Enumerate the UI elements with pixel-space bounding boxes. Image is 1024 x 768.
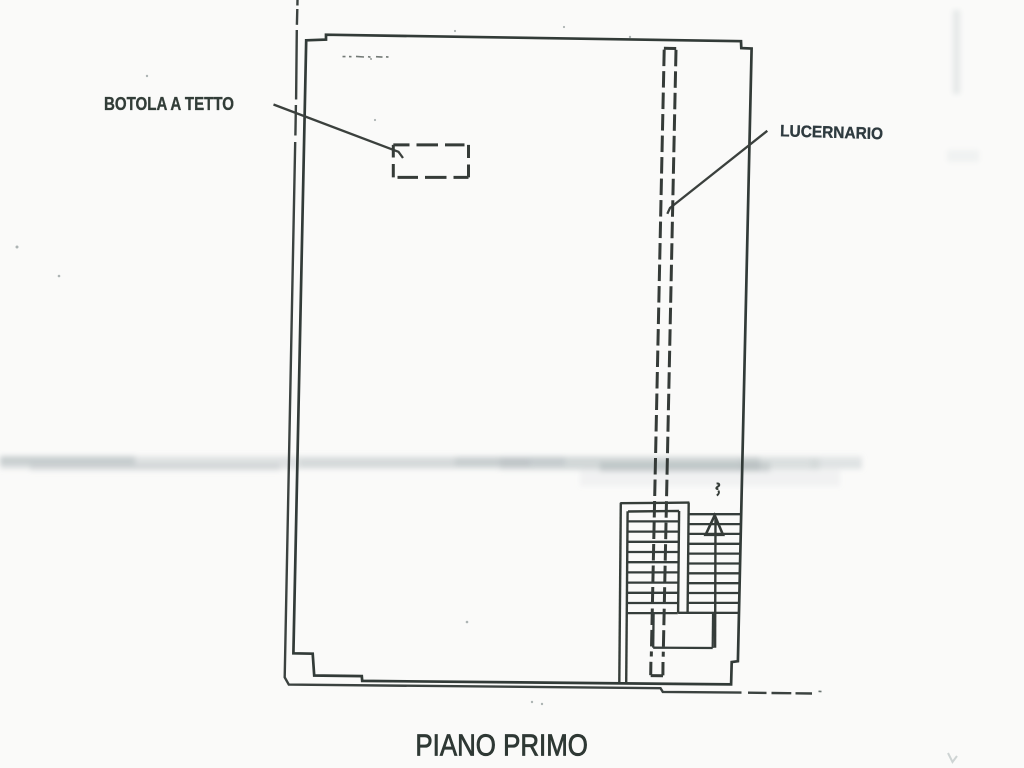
svg-text:BOTOLA A TETTO: BOTOLA A TETTO	[104, 94, 234, 114]
svg-text:PIANO PRIMO: PIANO PRIMO	[415, 728, 588, 763]
svg-text:LUCERNARIO: LUCERNARIO	[780, 122, 884, 143]
